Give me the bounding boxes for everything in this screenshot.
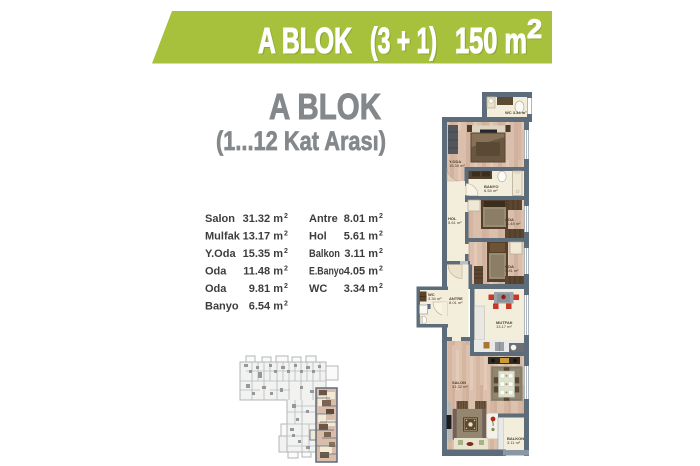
svg-text:Banyo: Banyo: [205, 301, 239, 313]
svg-text:3.34 m²: 3.34 m²: [428, 296, 442, 301]
svg-text:3.34 m: 3.34 m: [344, 283, 378, 295]
svg-text:E.Banyo: E.Banyo: [309, 266, 344, 278]
svg-text:A BLOK: A BLOK: [269, 86, 381, 127]
svg-text:8.01 m: 8.01 m: [344, 213, 378, 225]
svg-text:2: 2: [379, 213, 383, 220]
svg-text:13.17 m: 13.17 m: [243, 231, 284, 243]
svg-text:8.01 m²: 8.01 m²: [449, 300, 463, 305]
svg-text:Oda: Oda: [205, 283, 227, 295]
svg-text:2: 2: [284, 248, 288, 255]
svg-text:5.61 m²: 5.61 m²: [448, 220, 462, 225]
svg-text:Hol: Hol: [309, 231, 327, 243]
svg-text:13.17 m²: 13.17 m²: [496, 324, 512, 329]
svg-text:2: 2: [379, 248, 383, 255]
svg-text:31.32 m: 31.32 m: [243, 213, 284, 225]
svg-text:15.35 m: 15.35 m: [243, 248, 284, 260]
svg-text:5.61 m: 5.61 m: [344, 231, 378, 243]
svg-text:9.81 m: 9.81 m: [249, 283, 283, 295]
svg-text:Oda: Oda: [205, 266, 227, 278]
svg-text:11.48 m: 11.48 m: [243, 266, 283, 278]
svg-text:3.11 m: 3.11 m: [344, 248, 378, 260]
svg-text:11.48 m²: 11.48 m²: [505, 221, 521, 226]
svg-text:Mulfak: Mulfak: [205, 231, 241, 243]
svg-text:Antre: Antre: [309, 213, 338, 225]
svg-text:WC 3.34 m²: WC 3.34 m²: [505, 110, 527, 115]
svg-text:A BLOK: A BLOK: [258, 20, 352, 61]
svg-text:9.81 m²: 9.81 m²: [505, 268, 519, 273]
svg-text:(3 + 1): (3 + 1): [370, 20, 437, 61]
svg-text:31.32 m²: 31.32 m²: [452, 384, 468, 389]
svg-text:2: 2: [379, 283, 383, 290]
svg-text:2: 2: [284, 231, 288, 238]
svg-text:6.54 m²: 6.54 m²: [484, 188, 498, 193]
svg-text:Salon: Salon: [205, 213, 235, 225]
svg-text:2: 2: [284, 283, 288, 290]
svg-text:15.35 m²: 15.35 m²: [449, 163, 465, 168]
svg-text:6.54 m: 6.54 m: [249, 301, 283, 313]
svg-text:(1...12 Kat Arası): (1...12 Kat Arası): [216, 126, 386, 156]
svg-text:WC: WC: [309, 283, 327, 295]
svg-text:2: 2: [284, 266, 288, 273]
svg-text:2: 2: [527, 14, 542, 44]
svg-text:2: 2: [284, 213, 288, 220]
svg-text:Balkon: Balkon: [309, 248, 340, 260]
svg-text:2: 2: [379, 266, 383, 273]
svg-text:3.11 m²: 3.11 m²: [507, 440, 521, 445]
svg-text:Y.Oda: Y.Oda: [205, 248, 236, 260]
svg-text:4.05 m: 4.05 m: [344, 266, 378, 278]
svg-text:150 m: 150 m: [455, 20, 527, 61]
svg-text:2: 2: [379, 231, 383, 238]
svg-text:2: 2: [284, 301, 288, 308]
